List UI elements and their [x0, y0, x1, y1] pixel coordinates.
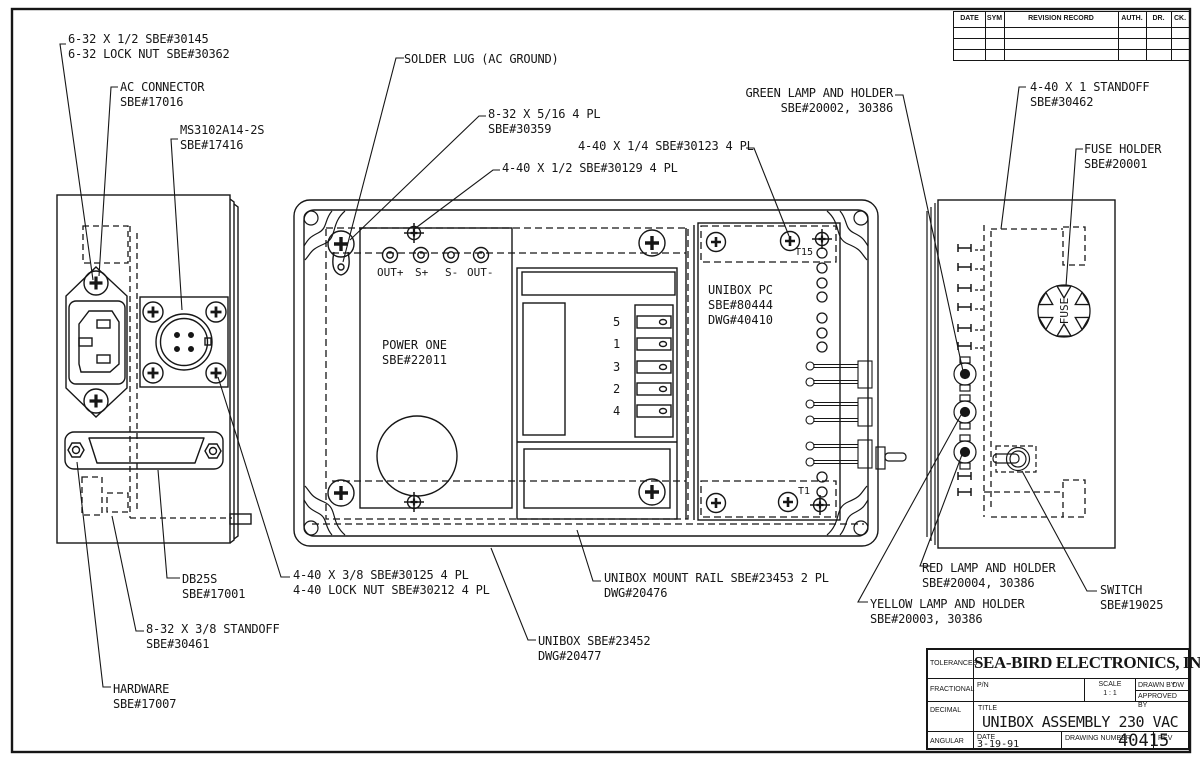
screw-icon: [404, 223, 424, 243]
callout-screw-4-40-1-4: 4-40 X 1/4 SBE#30123 4 PL: [578, 139, 754, 154]
rev-col-sym: SYM: [985, 14, 1004, 24]
title-block: TOLERANCES FRACTIONAL DECIMAL ANGULAR SE…: [926, 648, 1190, 750]
tab-number: 3: [613, 360, 620, 374]
callout-mount-rail: UNIBOX MOUNT RAIL SBE#23453 2 PL DWG#204…: [604, 571, 829, 601]
section-divider: [686, 225, 694, 520]
screw-icon: [812, 229, 832, 249]
power-one-label: POWER ONE SBE#22011: [382, 338, 447, 368]
drawing-title: UNIBOX ASSEMBLY 230 VAC: [982, 714, 1178, 730]
phillips-screw-icon: [84, 271, 108, 295]
terminal-label-out-minus: OUT-: [467, 266, 494, 279]
ring-terminal-icon: [474, 248, 489, 263]
tolerances-label: TOLERANCES: [930, 659, 977, 668]
drawn-by-label: DRAWN BY: [1138, 681, 1175, 690]
callout-ms-connector: MS3102A14-2S SBE#17416: [180, 123, 264, 153]
tab-number: 5: [613, 315, 620, 329]
drawing-sheet: 6-32 X 1/2 SBE#30145 6-32 LOCK NUT SBE#3…: [0, 0, 1200, 761]
tab-number: 1: [613, 337, 620, 351]
phillips-screw-icon: [707, 494, 726, 513]
phillips-screw-icon: [143, 302, 163, 322]
rev-label: REV: [1158, 734, 1172, 743]
callout-screw-8-32: 8-32 X 5/16 4 PL SBE#30359: [488, 107, 600, 137]
fractional-label: FRACTIONAL: [930, 685, 974, 694]
toggle-switch-side: [993, 446, 1036, 472]
callout-standoff-4-40: 4-40 X 1 STANDOFF SBE#30462: [1030, 80, 1149, 110]
drawn-by-value: DW: [1172, 681, 1184, 690]
red-lamp-icon: [954, 435, 976, 469]
terminal-label-s-minus: S-: [445, 266, 458, 279]
toggle-switch-top: [876, 447, 906, 469]
ms-circular-connector: [140, 297, 228, 387]
fuse-label: FUSE: [1042, 289, 1086, 333]
rev-col-dr: DR.: [1146, 14, 1171, 24]
callout-db25s: DB25S SBE#17001: [182, 572, 245, 602]
callout-ac-connector: AC CONNECTOR SBE#17016: [120, 80, 204, 110]
callout-standoff-8-32: 8-32 X 3/8 STANDOFF SBE#30461: [146, 622, 279, 652]
ring-terminal-icon: [444, 248, 459, 263]
phillips-screw-icon: [639, 230, 665, 256]
callout-fuse-holder: FUSE HOLDER SBE#20001: [1084, 142, 1161, 172]
phillips-screw-icon: [639, 479, 665, 505]
phillips-screw-icon: [143, 363, 163, 383]
callout-fastener-6-32: 6-32 X 1/2 SBE#30145 6-32 LOCK NUT SBE#3…: [68, 32, 230, 62]
ac-inlet-connector: [66, 267, 127, 417]
terminal-label-s-plus: S+: [415, 266, 428, 279]
rev-col-ck: CK.: [1171, 14, 1189, 24]
tab-number: 2: [613, 382, 620, 396]
date-value: 3-19-91: [977, 739, 1019, 750]
rev-col-auth: AUTH.: [1118, 14, 1146, 24]
company-name: SEA-BIRD ELECTRONICS, INC: [974, 653, 1200, 672]
terminal-label-out-plus: OUT+: [377, 266, 404, 279]
callout-yellow-lamp: YELLOW LAMP AND HOLDER SBE#20003, 30386: [870, 597, 1025, 627]
indicator-lamps: [954, 357, 976, 469]
unibox-pc-label: UNIBOX PC SBE#80444 DWG#40410: [708, 283, 773, 328]
phillips-screw-icon: [206, 363, 226, 383]
db25-connector: [65, 432, 223, 469]
t15-label: T15: [795, 247, 813, 259]
rev-col-date: DATE: [954, 14, 985, 24]
phillips-screw-icon: [328, 480, 354, 506]
phillips-screw-icon: [707, 233, 726, 252]
tab-number: 4: [613, 404, 620, 418]
lamp-pins: [806, 361, 872, 468]
end-panel-view: [57, 195, 251, 543]
side-panel-view: [927, 200, 1115, 548]
rev-col-record: REVISION RECORD: [1004, 14, 1118, 24]
title-label: TITLE: [978, 704, 997, 713]
unibox-pc-board: [698, 223, 906, 520]
pcb-hidden-outline: [975, 225, 1085, 517]
scale-value: 1 : 1: [1085, 689, 1135, 698]
green-lamp-icon: [954, 357, 976, 391]
pn-label: P/N: [977, 681, 989, 690]
scale-label: SCALE: [1085, 680, 1135, 689]
callout-unibox: UNIBOX SBE#23452 DWG#20477: [538, 634, 650, 664]
screw-icon: [810, 495, 830, 515]
mounting-ears: [304, 211, 868, 535]
callout-screw-4-40-1-2: 4-40 X 1/2 SBE#30129 4 PL: [502, 161, 678, 176]
phillips-screw-icon: [779, 493, 798, 512]
callout-solder-lug: SOLDER LUG (AC GROUND): [404, 52, 559, 67]
unibox-top-view: [294, 200, 906, 546]
callout-hardware: HARDWARE SBE#17007: [113, 682, 176, 712]
revision-table: DATE SYM REVISION RECORD AUTH. DR. CK.: [953, 11, 1190, 61]
callout-screw-4-40-3-8: 4-40 X 3/8 SBE#30125 4 PL 4-40 LOCK NUT …: [293, 568, 490, 598]
callout-red-lamp: RED LAMP AND HOLDER SBE#20004, 30386: [922, 561, 1055, 591]
ring-terminal-icon: [383, 248, 398, 263]
ring-terminal-icon: [414, 248, 429, 263]
yellow-lamp-icon: [954, 395, 976, 429]
t1-label: T1: [798, 486, 810, 498]
phillips-screw-icon: [206, 302, 226, 322]
callout-green-lamp: GREEN LAMP AND HOLDER SBE#20002, 30386: [745, 86, 893, 116]
callout-switch: SWITCH SBE#19025: [1100, 583, 1163, 613]
angular-label: ANGULAR: [930, 737, 964, 746]
decimal-label: DECIMAL: [930, 706, 961, 715]
phillips-screw-icon: [84, 389, 108, 413]
